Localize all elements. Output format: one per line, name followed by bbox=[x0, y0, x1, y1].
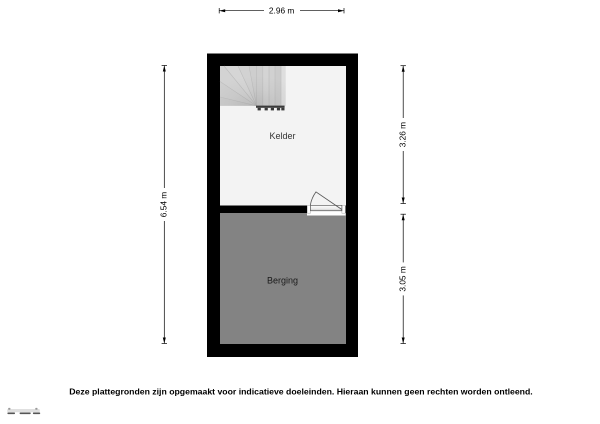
svg-text:Deze plattegronden zijn opgema: Deze plattegronden zijn opgemaakt voor i… bbox=[69, 387, 532, 397]
svg-text:3.26 m: 3.26 m bbox=[397, 122, 407, 147]
svg-text:2.96 m: 2.96 m bbox=[269, 6, 294, 16]
svg-text:Berging: Berging bbox=[267, 276, 298, 286]
svg-text:3.05 m: 3.05 m bbox=[397, 266, 407, 291]
svg-text:Kelder: Kelder bbox=[269, 131, 295, 141]
svg-text:6.54 m: 6.54 m bbox=[158, 192, 168, 217]
